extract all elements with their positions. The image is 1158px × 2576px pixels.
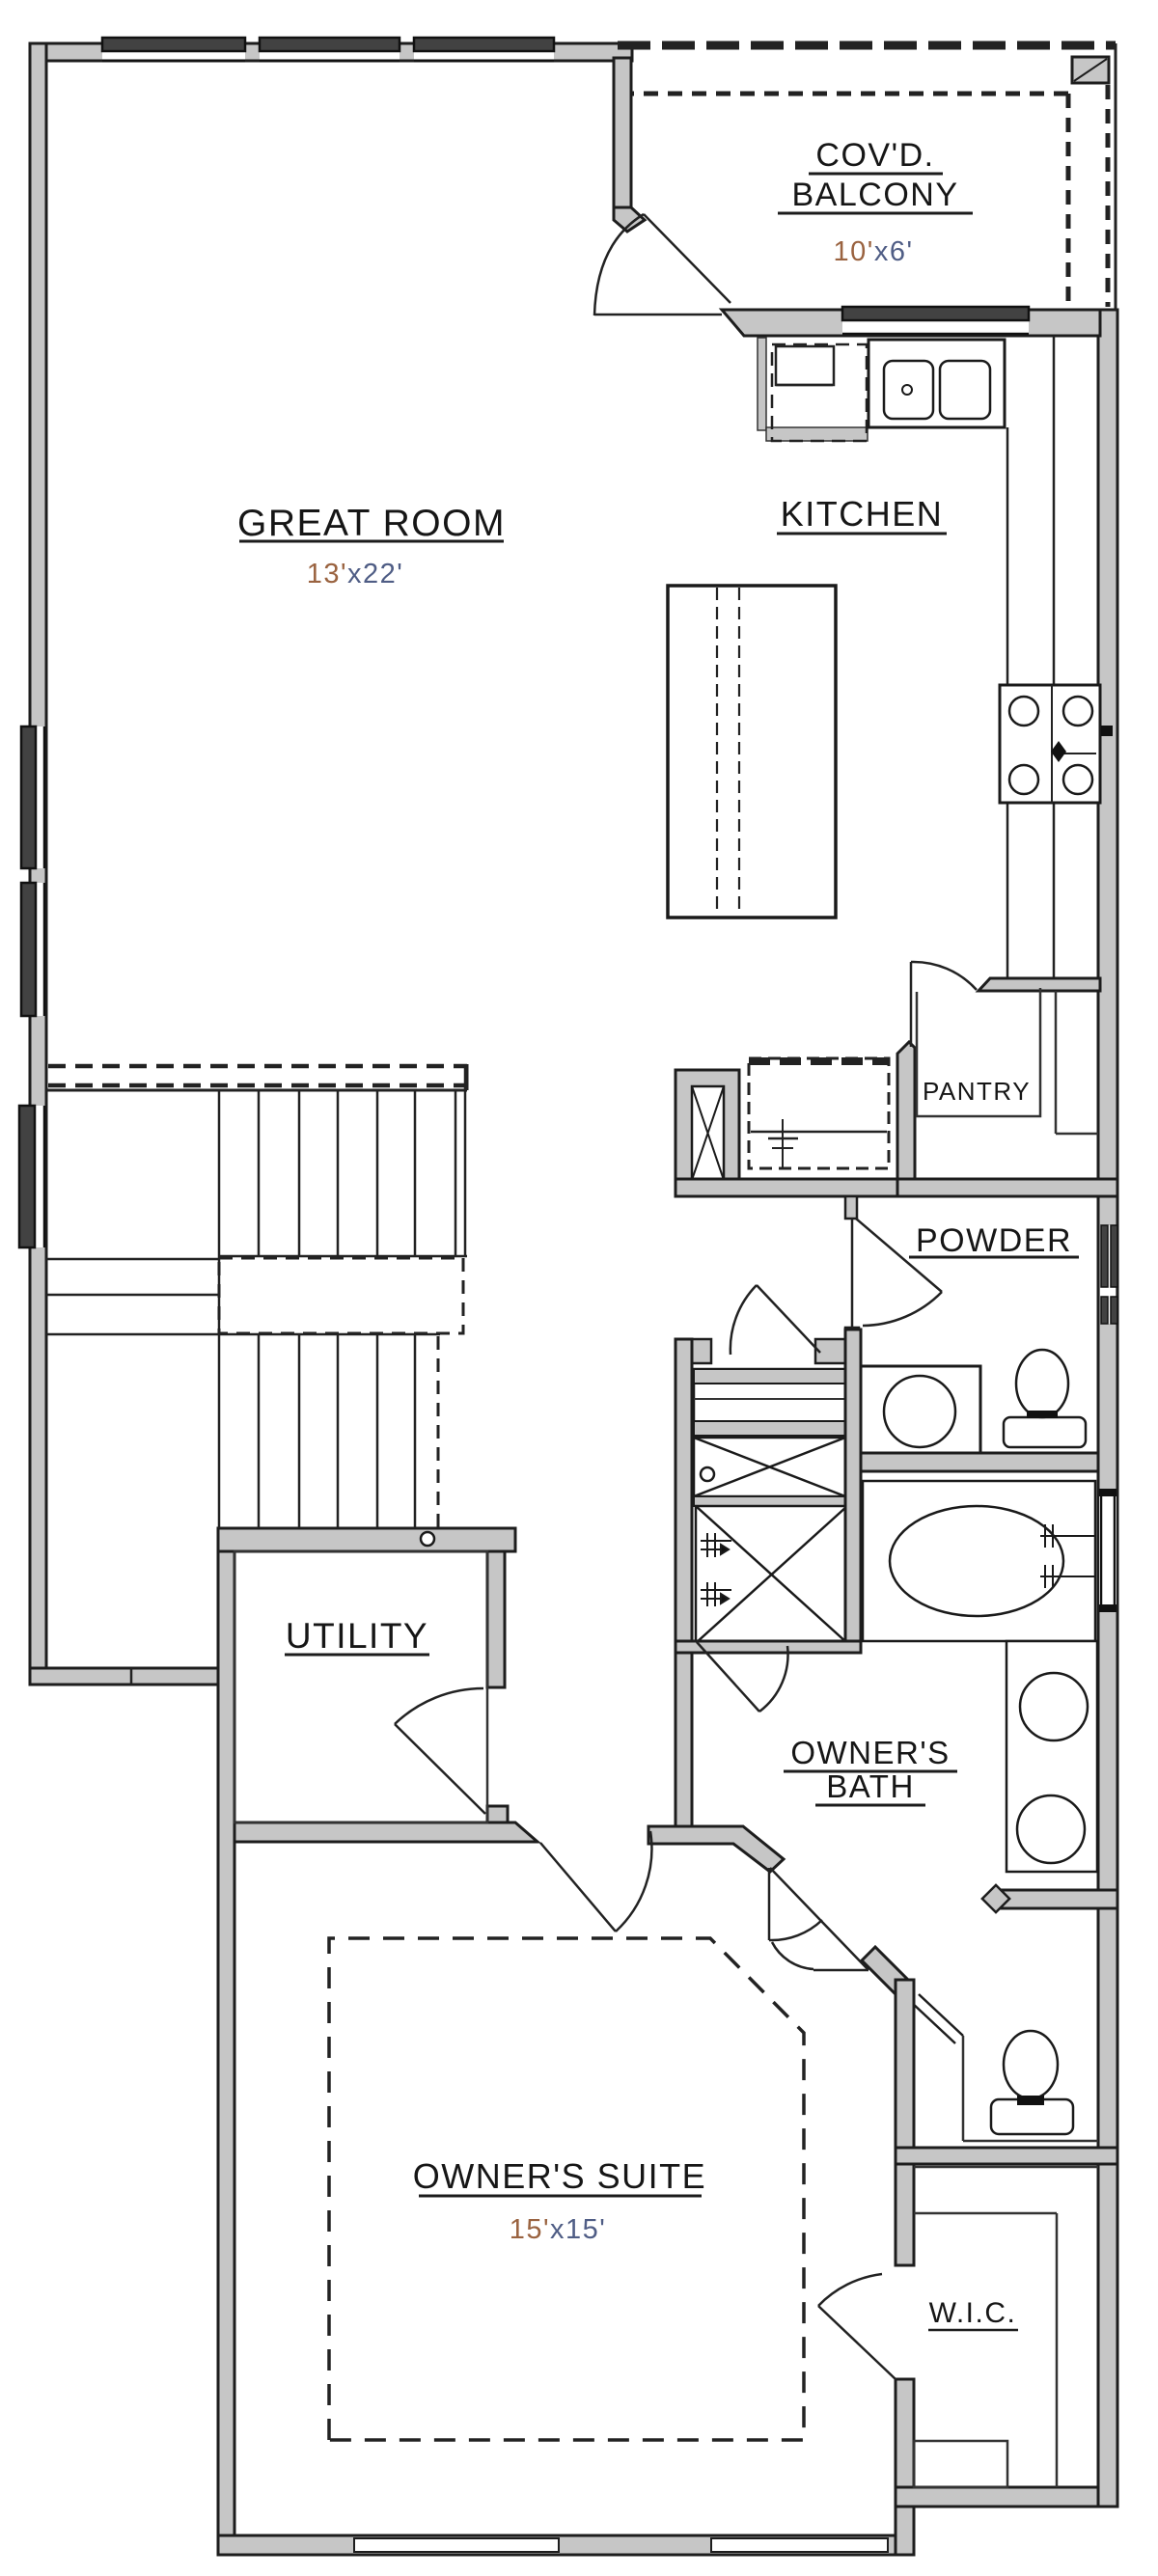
- svg-text:OWNER'S: OWNER'S: [790, 1735, 950, 1770]
- svg-text:UTILITY: UTILITY: [286, 1616, 428, 1656]
- svg-text:KITCHEN: KITCHEN: [781, 494, 944, 534]
- svg-text:BALCONY: BALCONY: [792, 177, 959, 213]
- svg-text:10'x6': 10'x6': [834, 236, 914, 267]
- svg-text:W.I.C.: W.I.C.: [929, 2297, 1017, 2329]
- svg-text:15'x15': 15'x15': [510, 2214, 607, 2245]
- svg-text:COV'D.: COV'D.: [815, 137, 934, 174]
- svg-text:PANTRY: PANTRY: [923, 1077, 1031, 1106]
- svg-text:POWDER: POWDER: [916, 1222, 1072, 1259]
- svg-text:OWNER'S SUITE: OWNER'S SUITE: [413, 2156, 706, 2196]
- svg-text:BATH: BATH: [826, 1768, 915, 1804]
- svg-text:13'x22': 13'x22': [307, 559, 404, 589]
- svg-text:GREAT ROOM: GREAT ROOM: [237, 503, 506, 544]
